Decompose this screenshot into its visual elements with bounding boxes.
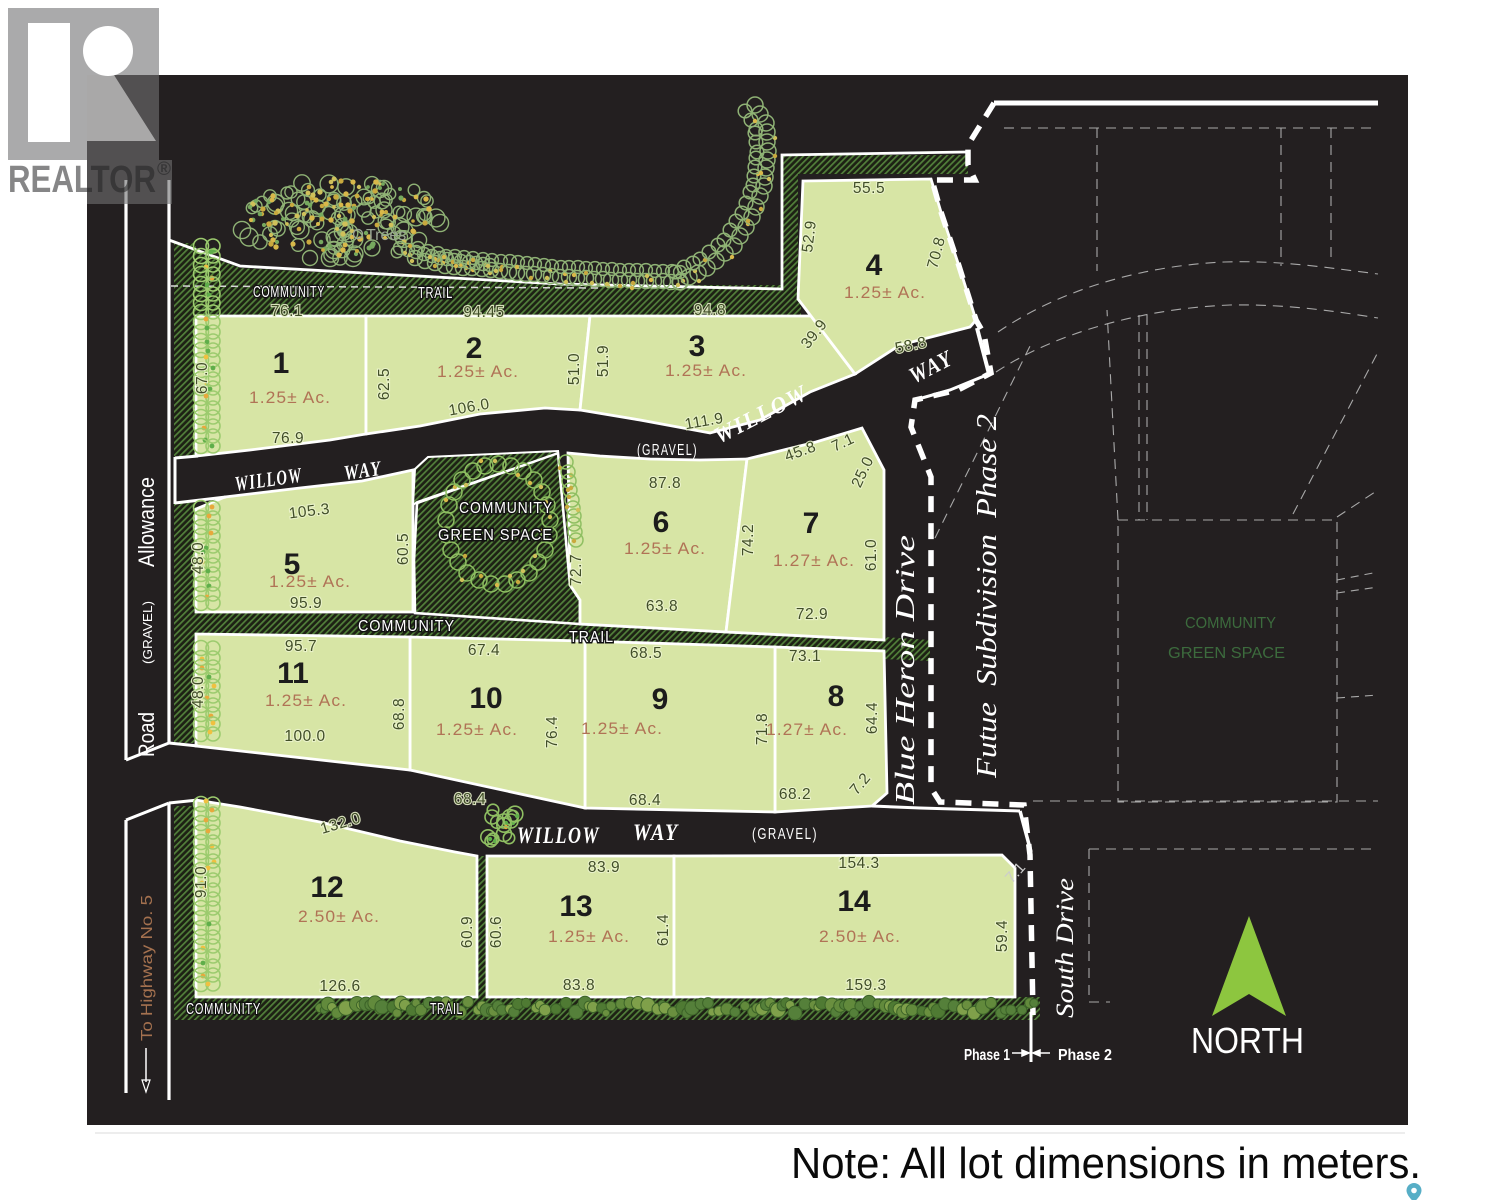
svg-text:Note: All lot dimensions in me: Note: All lot dimensions in meters. xyxy=(791,1139,1421,1188)
svg-text:1.25± Ac.: 1.25± Ac. xyxy=(624,539,706,558)
svg-text:14: 14 xyxy=(837,885,871,918)
svg-text:60.6: 60.6 xyxy=(488,916,505,948)
svg-text:159.3: 159.3 xyxy=(845,977,886,994)
svg-text:1: 1 xyxy=(273,347,290,380)
svg-text:68.4: 68.4 xyxy=(629,792,661,809)
svg-text:Allowance: Allowance xyxy=(134,477,159,567)
svg-text:67.4: 67.4 xyxy=(468,642,500,659)
svg-text:2.50± Ac.: 2.50± Ac. xyxy=(819,927,901,946)
svg-text:64.4: 64.4 xyxy=(864,702,881,734)
svg-text:73.1: 73.1 xyxy=(789,648,821,665)
svg-text:TRAIL: TRAIL xyxy=(430,1001,463,1018)
svg-text:55.5: 55.5 xyxy=(853,180,885,197)
svg-text:1.25± Ac.: 1.25± Ac. xyxy=(548,927,630,946)
svg-text:COMMUNITY: COMMUNITY xyxy=(459,500,553,517)
svg-text:1.25± Ac.: 1.25± Ac. xyxy=(581,719,663,738)
svg-text:51.9: 51.9 xyxy=(595,345,612,377)
svg-text:Phase 1: Phase 1 xyxy=(964,1047,1010,1064)
svg-text:76.4: 76.4 xyxy=(544,716,561,748)
svg-text:7: 7 xyxy=(803,507,820,540)
svg-text:Blue Heron Drive: Blue Heron Drive xyxy=(890,535,920,805)
svg-text:GREEN SPACE: GREEN SPACE xyxy=(1168,645,1285,662)
svg-text:3: 3 xyxy=(689,330,706,363)
svg-text:9: 9 xyxy=(652,683,669,716)
svg-text:76.1: 76.1 xyxy=(271,303,303,320)
svg-text:63.8: 63.8 xyxy=(646,598,678,615)
svg-text:(GRAVEL): (GRAVEL) xyxy=(752,826,818,843)
svg-text:60.9: 60.9 xyxy=(459,916,476,948)
svg-text:68.5: 68.5 xyxy=(630,645,662,662)
svg-text:1.25± Ac.: 1.25± Ac. xyxy=(265,691,347,710)
svg-text:South Drive: South Drive xyxy=(1052,878,1079,1018)
svg-text:72.9: 72.9 xyxy=(796,606,828,623)
svg-text:NORTH: NORTH xyxy=(1191,1020,1304,1061)
svg-text:126.6: 126.6 xyxy=(319,978,360,995)
svg-text:62.5: 62.5 xyxy=(376,368,393,400)
svg-text:48.0: 48.0 xyxy=(190,676,207,708)
svg-text:®: ® xyxy=(157,159,171,180)
svg-text:48.0: 48.0 xyxy=(190,542,207,574)
svg-text:Road: Road xyxy=(134,712,159,757)
svg-text:59.4: 59.4 xyxy=(994,920,1011,952)
svg-text:1.27± Ac.: 1.27± Ac. xyxy=(773,551,855,570)
svg-text:68.8: 68.8 xyxy=(391,698,408,730)
svg-text:100.0: 100.0 xyxy=(284,728,325,745)
svg-text:COMMUNITY: COMMUNITY xyxy=(253,284,325,301)
svg-text:Phase 2: Phase 2 xyxy=(1058,1047,1112,1064)
svg-text:87.8: 87.8 xyxy=(649,475,681,492)
svg-text:1.25± Ac.: 1.25± Ac. xyxy=(269,572,351,591)
svg-text:1.25± Ac.: 1.25± Ac. xyxy=(436,720,518,739)
svg-text:1.25± Ac.: 1.25± Ac. xyxy=(249,388,331,407)
svg-text:4: 4 xyxy=(866,249,883,282)
svg-text:60.5: 60.5 xyxy=(395,533,412,565)
svg-text:154.3: 154.3 xyxy=(838,855,879,872)
svg-text:REALTOR: REALTOR xyxy=(8,159,156,201)
svg-text:2: 2 xyxy=(466,332,483,365)
svg-text:72.7: 72.7 xyxy=(568,554,585,586)
svg-text:TRAIL: TRAIL xyxy=(569,629,614,646)
svg-text:(GRAVEL): (GRAVEL) xyxy=(140,601,155,664)
svg-text:83.9: 83.9 xyxy=(588,859,620,876)
svg-text:67.0: 67.0 xyxy=(194,362,211,394)
svg-text:COMMUNITY: COMMUNITY xyxy=(358,618,455,635)
svg-text:95.9: 95.9 xyxy=(290,595,322,612)
svg-text:1.27± Ac.: 1.27± Ac. xyxy=(766,720,848,739)
svg-text:1.25± Ac.: 1.25± Ac. xyxy=(844,283,926,302)
svg-text:10: 10 xyxy=(469,682,502,715)
svg-text:(GRAVEL): (GRAVEL) xyxy=(637,442,698,459)
svg-text:1.25± Ac.: 1.25± Ac. xyxy=(437,362,519,381)
svg-text:6: 6 xyxy=(653,506,670,539)
svg-text:83.8: 83.8 xyxy=(563,977,595,994)
svg-text:95.7: 95.7 xyxy=(285,638,317,655)
svg-text:94.8: 94.8 xyxy=(694,302,726,319)
svg-text:12: 12 xyxy=(310,871,343,904)
svg-text:1.25± Ac.: 1.25± Ac. xyxy=(665,361,747,380)
svg-text:2.50± Ac.: 2.50± Ac. xyxy=(298,907,380,926)
svg-text:Trees: Trees xyxy=(366,227,406,244)
svg-text:91.0: 91.0 xyxy=(193,866,210,898)
svg-text:74.2: 74.2 xyxy=(740,524,757,556)
svg-text:To Highway No. 5: To Highway No. 5 xyxy=(139,895,156,1041)
svg-text:11: 11 xyxy=(277,657,309,690)
svg-text:13: 13 xyxy=(559,890,592,923)
svg-text:WILLOW: WILLOW xyxy=(517,823,600,848)
svg-text:GREEN SPACE: GREEN SPACE xyxy=(438,527,553,544)
svg-text:WAY: WAY xyxy=(633,820,679,845)
svg-text:68.2: 68.2 xyxy=(779,786,811,803)
svg-text:TRAIL: TRAIL xyxy=(418,285,453,302)
svg-text:68.4: 68.4 xyxy=(454,791,486,808)
svg-text:Futue Subdivision Phase 2: Futue Subdivision Phase 2 xyxy=(972,414,1003,779)
svg-text:94.45: 94.45 xyxy=(463,304,504,321)
svg-text:51.0: 51.0 xyxy=(566,353,583,385)
svg-text:8: 8 xyxy=(828,680,845,713)
svg-text:61.0: 61.0 xyxy=(863,539,880,571)
svg-text:COMMUNITY: COMMUNITY xyxy=(186,1001,261,1018)
svg-text:61.4: 61.4 xyxy=(655,914,672,946)
svg-text:COMMUNITY: COMMUNITY xyxy=(1185,615,1276,632)
svg-text:76.9: 76.9 xyxy=(272,430,304,447)
